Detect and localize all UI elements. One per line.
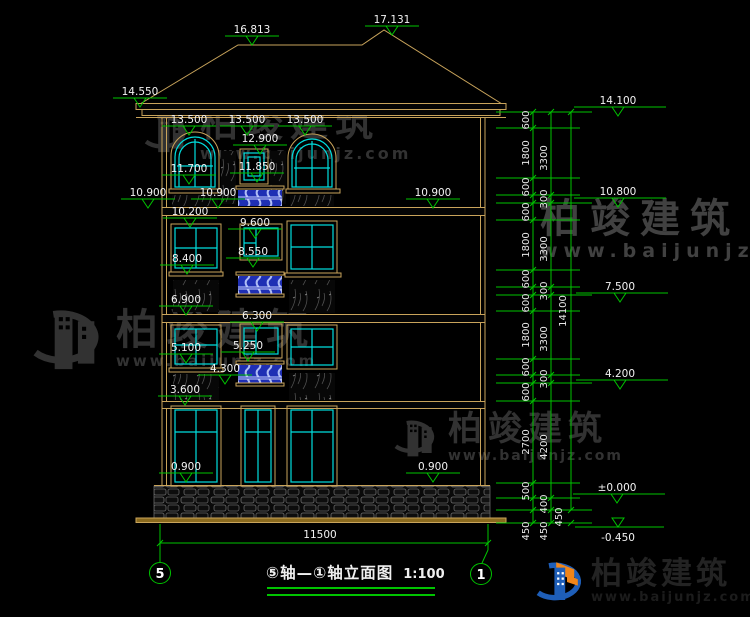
balustrade (238, 276, 282, 294)
company-logo-icon (531, 555, 585, 609)
svg-text:10.900: 10.900 (415, 187, 452, 199)
svg-text:10.800: 10.800 (600, 186, 637, 198)
elevation-marker: 12.900 (233, 133, 287, 154)
right-window-column (285, 134, 341, 486)
svg-text:6.900: 6.900 (171, 294, 201, 306)
svg-text:0.900: 0.900 (418, 461, 448, 473)
balustrade (238, 365, 282, 383)
dim-label: 300 (539, 189, 550, 208)
dim-label: 450 (521, 521, 532, 540)
company-logo: 柏竣建筑 www.baijunjz.com (531, 555, 750, 609)
right-dimension-chains: 600 1800 600 600 1800 600 600 1800 600 6… (496, 109, 592, 541)
svg-text:4.300: 4.300 (210, 363, 240, 375)
dim-total-width: 11500 (303, 529, 336, 541)
stone-plinth (136, 486, 506, 523)
cad-elevation-canvas: 柏竣建筑 www.baijunjz.com 柏竣建筑 www.baijunjz.… (0, 0, 750, 617)
svg-text:17.131: 17.131 (374, 14, 411, 26)
svg-text:±0.000: ±0.000 (598, 482, 637, 494)
marble-panel (289, 373, 335, 400)
elevation-marker: -0.450 (575, 518, 664, 544)
title-underline (267, 587, 435, 596)
dim-label: 4200 (539, 434, 550, 459)
svg-text:-0.450: -0.450 (601, 532, 635, 544)
dim-label: 600 (521, 357, 532, 376)
svg-text:16.813: 16.813 (234, 24, 271, 36)
dim-label: 450 (539, 521, 550, 540)
elevation-marker: 10.800 (574, 186, 666, 207)
floor-band (162, 402, 485, 409)
svg-text:0.900: 0.900 (171, 461, 201, 473)
drawing-scale: 1:100 (403, 567, 444, 582)
dim-label: 400 (539, 494, 550, 513)
hip-roof (136, 30, 506, 118)
svg-text:11.850: 11.850 (239, 161, 276, 173)
elevation-marker: 0.900 (159, 461, 213, 482)
bottom-dimension: 11500 (157, 524, 491, 556)
dim-label: 600 (521, 110, 532, 129)
marble-panel (289, 280, 335, 313)
svg-text:3.600: 3.600 (170, 384, 200, 396)
drawing-title-text: ⑤轴—①轴立面图 (266, 561, 393, 583)
svg-text:5.250: 5.250 (233, 340, 263, 352)
dim-label: 300 (539, 281, 550, 300)
dim-label: 600 (521, 382, 532, 401)
svg-text:5.100: 5.100 (171, 342, 201, 354)
floor-band (162, 315, 485, 323)
svg-text:6.300: 6.300 (242, 310, 272, 322)
svg-text:8.550: 8.550 (238, 246, 268, 258)
dim-label: 1800 (521, 232, 532, 257)
dim-label: 2700 (521, 429, 532, 454)
elevation-marker: 8.400 (160, 253, 214, 274)
elevation-drawing: 600 1800 600 600 1800 600 600 1800 600 6… (0, 0, 750, 617)
elevation-marker: 10.900 (406, 187, 460, 208)
elevation-marker: 4.200 (576, 368, 668, 389)
svg-text:4.200: 4.200 (605, 368, 635, 380)
svg-text:11.700: 11.700 (171, 163, 208, 175)
svg-text:10.900: 10.900 (130, 187, 167, 199)
axis-number-right: 1 (476, 568, 485, 583)
svg-text:7.500: 7.500 (605, 281, 635, 293)
balustrade (238, 190, 282, 206)
dim-label: 14100 (558, 295, 569, 327)
svg-text:14.100: 14.100 (600, 95, 637, 107)
dim-label: 3300 (539, 236, 550, 261)
elevation-marker: 0.900 (406, 461, 460, 482)
svg-text:13.500: 13.500 (229, 114, 266, 126)
svg-text:10.900: 10.900 (200, 187, 237, 199)
dim-label: 3300 (539, 326, 550, 351)
dim-label: 600 (521, 269, 532, 288)
elevation-marker: 14.100 (574, 95, 666, 116)
floor-band (162, 208, 485, 216)
svg-text:10.200: 10.200 (172, 206, 209, 218)
svg-text:14.550: 14.550 (122, 86, 159, 98)
elevation-marker: 16.813 (225, 24, 279, 45)
dim-label: 300 (539, 369, 550, 388)
dim-label: 600 (521, 202, 532, 221)
elevation-marker: 17.131 (365, 14, 419, 35)
svg-text:12.900: 12.900 (242, 133, 279, 145)
left-window-column (169, 132, 223, 486)
company-logo-brand: 柏竣建筑 (591, 559, 750, 590)
dim-label: 600 (521, 177, 532, 196)
dim-label: 450 (554, 507, 565, 526)
svg-text:9.600: 9.600 (240, 217, 270, 229)
elevation-marker: 7.500 (576, 281, 668, 302)
elevation-marker: ±0.000 (573, 482, 665, 503)
dim-label: 1800 (521, 140, 532, 165)
company-logo-url: www.baijunjz.com (591, 590, 750, 605)
axis-number-left: 5 (155, 567, 164, 582)
svg-text:13.500: 13.500 (171, 114, 208, 126)
svg-text:8.400: 8.400 (172, 253, 202, 265)
ground-line (136, 518, 506, 523)
dim-label: 1800 (521, 322, 532, 347)
svg-text:13.500: 13.500 (287, 114, 324, 126)
dim-label: 600 (521, 293, 532, 312)
dim-label: 3300 (539, 145, 550, 170)
drawing-title: ⑤轴—①轴立面图 1:100 (266, 561, 445, 583)
marble-panel (290, 195, 334, 206)
dim-label: 500 (521, 481, 532, 500)
right-elevation-markers: 14.100 10.800 7.500 4.200 ±0.000 -0.450 (573, 95, 668, 544)
